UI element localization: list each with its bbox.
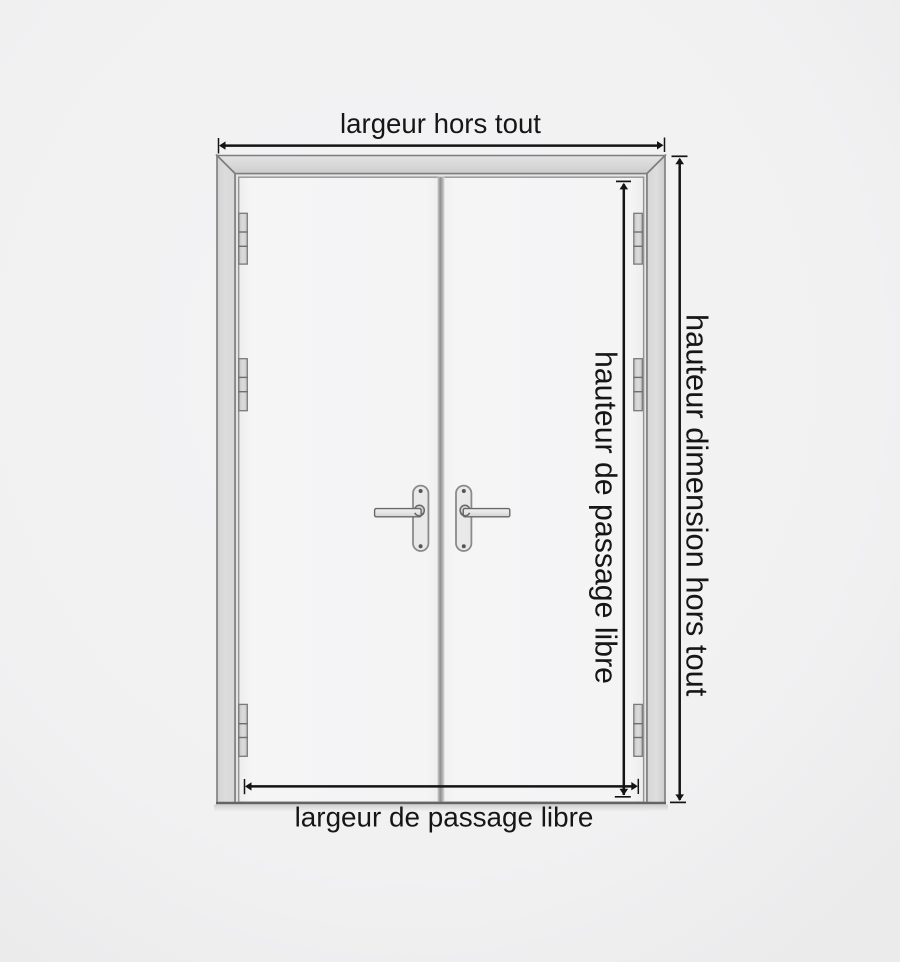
svg-text:largeur de passage libre: largeur de passage libre (295, 801, 594, 832)
svg-text:hauteur dimension hors tout: hauteur dimension hors tout (679, 314, 714, 697)
svg-text:largeur hors tout: largeur hors tout (340, 108, 541, 139)
svg-text:hauteur de passage libre: hauteur de passage libre (589, 351, 622, 684)
